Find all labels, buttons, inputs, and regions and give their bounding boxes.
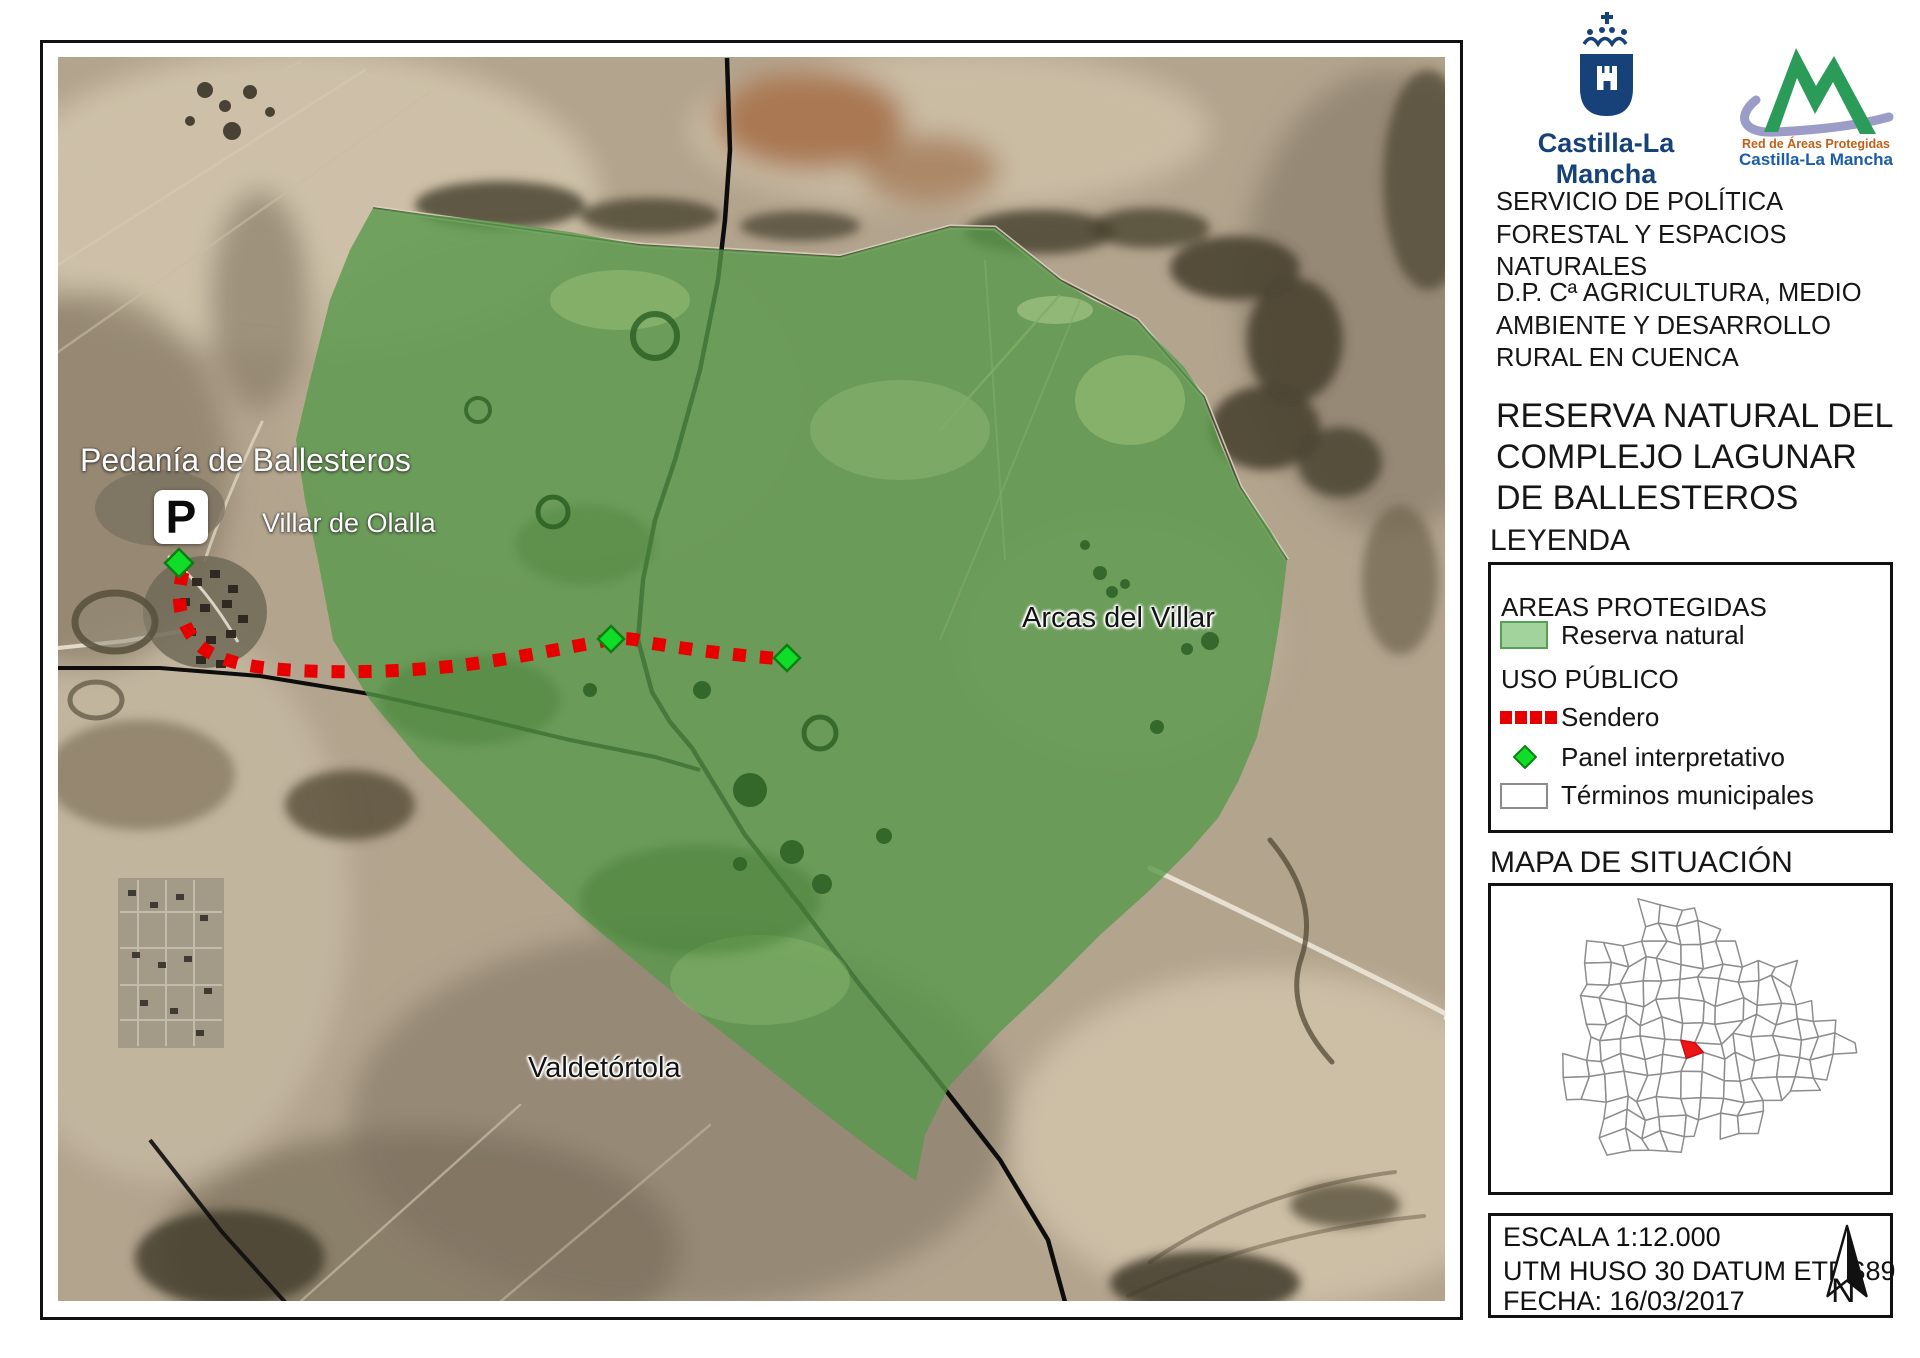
legend-heading: LEYENDA	[1490, 524, 1630, 558]
rap-logo-line1: Red de Áreas Protegidas	[1742, 136, 1890, 151]
reserva-swatch-icon	[1500, 621, 1548, 649]
service-text: SERVICIO DE POLÍTICA FORESTAL Y ESPACIOS…	[1496, 186, 1902, 284]
page: Pedanía de Ballesteros Villar de Olalla …	[0, 0, 1920, 1358]
situation-box	[1488, 883, 1893, 1195]
terminos-box-icon	[1500, 783, 1548, 809]
map-title: RESERVA NATURAL DEL COMPLEJO LAGUNAR DE …	[1496, 396, 1898, 518]
clm-crest-icon	[1576, 10, 1637, 122]
rap-logo-icon: Red de Áreas Protegidas Castilla-La Manc…	[1734, 20, 1899, 168]
sendero-dash-icon	[1500, 711, 1558, 724]
legend-item-reserva: Reserva natural	[1561, 621, 1745, 649]
legend-box: AREAS PROTEGIDAS Reserva natural USO PÚB…	[1488, 562, 1893, 833]
panel-diamond-icon	[1513, 745, 1537, 769]
situation-map	[1491, 886, 1890, 1192]
map-label-arcas: Arcas del Villar	[1022, 604, 1215, 633]
map-label-villar: Villar de Olalla	[262, 510, 436, 537]
map-info-box: ESCALA 1:12.000 UTM HUSO 30 DATUM ETRS89…	[1488, 1213, 1893, 1318]
clm-wordmark: Castilla-La Mancha	[1496, 128, 1716, 190]
legend-item-panel: Panel interpretativo	[1561, 743, 1785, 771]
north-label: N	[1831, 1272, 1856, 1311]
legend-group-areas: AREAS PROTEGIDAS	[1501, 593, 1767, 621]
legend-group-uso: USO PÚBLICO	[1501, 665, 1679, 693]
map-label-pedania: Pedanía de Ballesteros	[80, 444, 411, 476]
parking-sign-icon: P	[154, 490, 208, 544]
situation-heading: MAPA DE SITUACIÓN	[1490, 846, 1793, 880]
aerial-map: Pedanía de Ballesteros Villar de Olalla …	[58, 57, 1445, 1301]
rap-logo-line2: Castilla-La Mancha	[1739, 150, 1894, 168]
date-text: FECHA: 16/03/2017	[1503, 1286, 1745, 1317]
map-frame: Pedanía de Ballesteros Villar de Olalla …	[40, 40, 1463, 1320]
legend-item-sendero: Sendero	[1561, 703, 1659, 731]
scale-text: ESCALA 1:12.000	[1503, 1222, 1721, 1253]
aerial-imagery	[58, 57, 1445, 1301]
legend-item-terminos: Términos municipales	[1561, 781, 1814, 809]
department-text: D.P. Cª AGRICULTURA, MEDIO AMBIENTE Y DE…	[1496, 277, 1910, 375]
map-label-valdetortola: Valdetórtola	[528, 1054, 681, 1083]
